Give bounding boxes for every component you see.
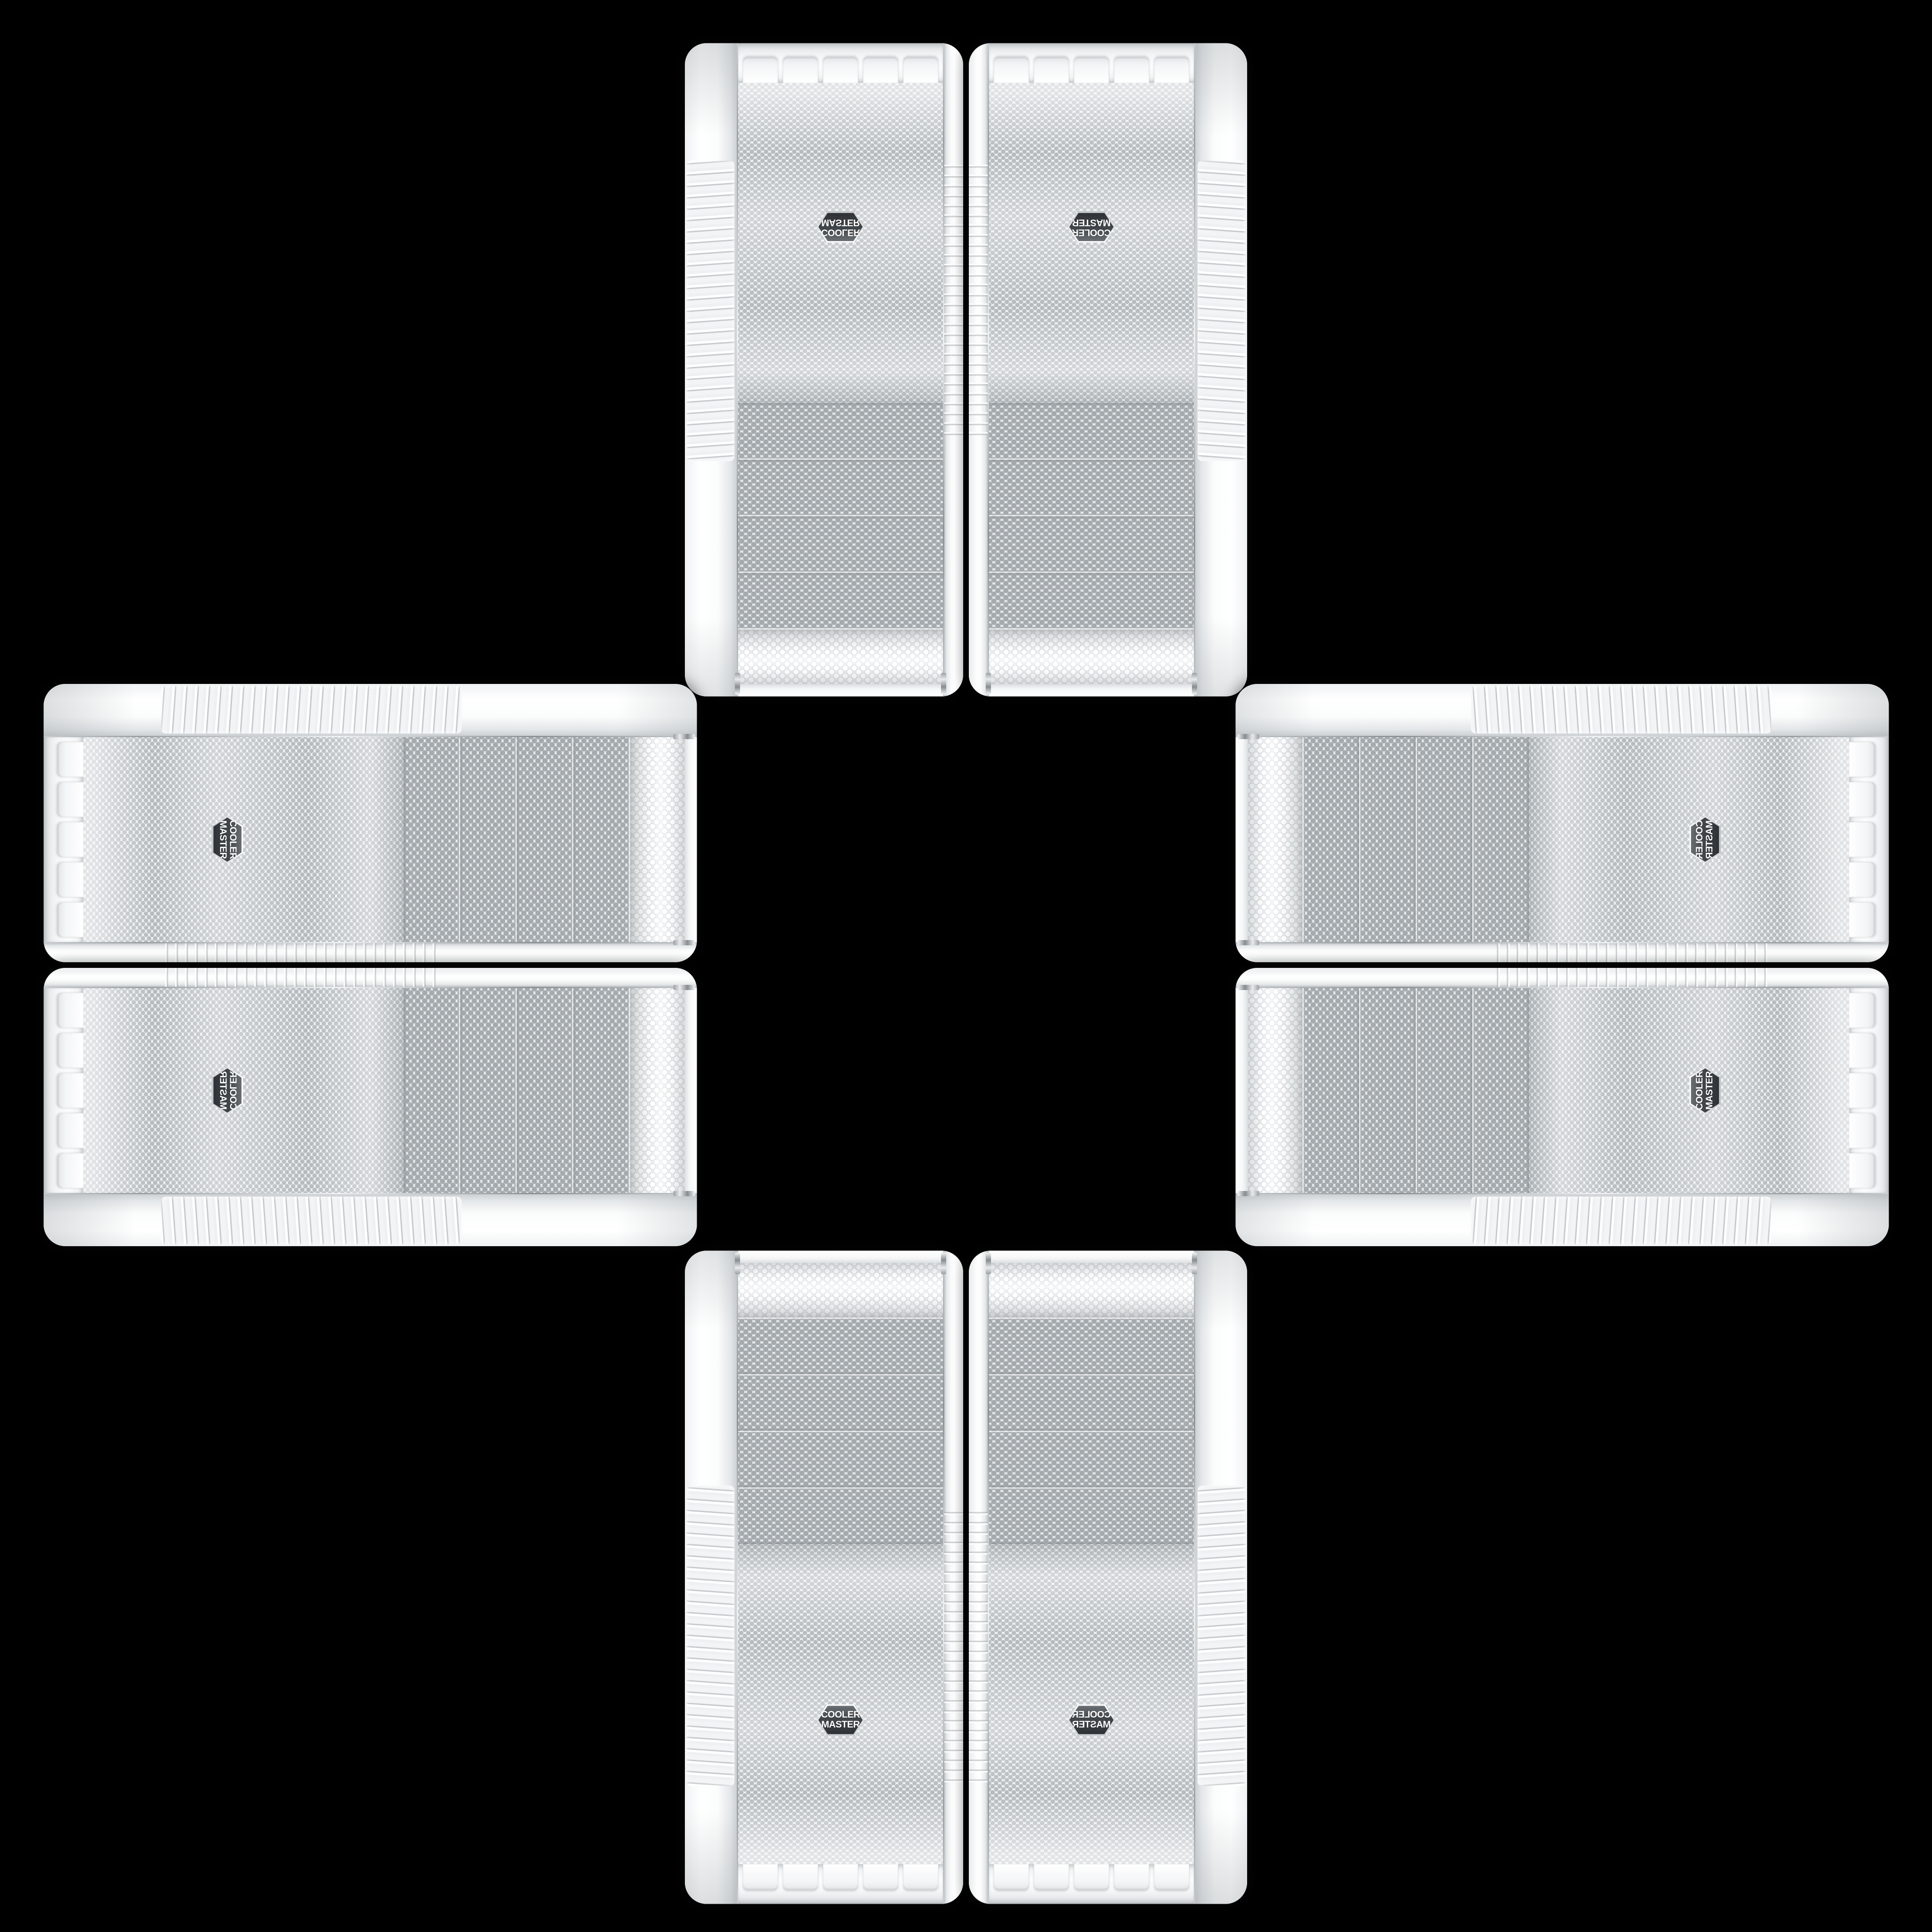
drive-bay-block — [738, 403, 943, 629]
outer-cap-tab-4 — [863, 57, 898, 83]
drive-bay-cover-4 — [989, 1487, 1194, 1544]
outer-end-cap — [738, 1864, 943, 1904]
outer-cap-tab-5 — [1849, 902, 1874, 937]
chrome-corner-tab-right — [986, 673, 991, 694]
badge-plate: COOLER MASTER — [1690, 817, 1719, 862]
badge-plate: COOLER MASTER — [1069, 1706, 1114, 1734]
outer-end-cap — [989, 43, 1194, 83]
inner-cap-shading — [1248, 988, 1302, 1193]
outer-cap-tab-1 — [1154, 1864, 1189, 1890]
cooler-master-badge: COOLER MASTER — [817, 1704, 864, 1735]
outer-cap-tab-2 — [1849, 782, 1874, 817]
mesh-sheen — [989, 83, 1194, 403]
outer-cap-tab-5 — [903, 57, 938, 83]
inner-cap-mesh — [630, 737, 684, 942]
drive-bay-block — [403, 737, 630, 942]
front-mesh: COOLER MASTER — [738, 83, 943, 403]
drive-bay-block — [1302, 737, 1529, 942]
rail-grip-fins — [1497, 968, 1771, 988]
side-rail — [43, 942, 697, 962]
inner-cap-mesh — [1248, 737, 1302, 942]
side-flank-panel — [43, 684, 697, 737]
chrome-trim-right — [988, 43, 989, 696]
chrome-corner-tab-left — [1237, 734, 1259, 739]
badge-text-line2: MASTER — [217, 1071, 227, 1109]
drive-bay-cover-3 — [989, 459, 1194, 516]
chrome-corner-tab-right — [1237, 940, 1259, 945]
drive-bay-cover-3 — [460, 737, 516, 942]
mesh-sheen — [989, 1544, 1194, 1864]
outer-cap-tab-5 — [58, 993, 83, 1028]
drive-bay-cover-4 — [403, 737, 460, 942]
rail-grip-fins — [1497, 942, 1771, 962]
outer-cap-tab-3 — [1074, 1864, 1109, 1890]
chrome-corner-tab-left — [673, 734, 695, 739]
outer-end-cap — [1849, 988, 1889, 1193]
outer-cap-tab-1 — [58, 742, 83, 777]
inner-cap-mesh — [989, 629, 1194, 684]
side-rail — [969, 43, 989, 696]
outer-cap-tab-2 — [1849, 1113, 1874, 1148]
chrome-corner-tab-left — [1237, 1191, 1259, 1196]
front-mesh: COOLER MASTER — [83, 737, 403, 942]
chrome-trim-right — [43, 987, 697, 988]
outer-cap-tab-2 — [783, 57, 818, 83]
outer-cap-tab-1 — [743, 1864, 778, 1890]
chrome-trim-left — [737, 43, 738, 696]
pc-case-right-bottom: COOLER MASTER — [1235, 968, 1889, 1246]
rail-grip-fins — [161, 968, 435, 988]
outer-cap-tab-1 — [1849, 1153, 1874, 1188]
chrome-trim-left — [1235, 1193, 1889, 1194]
chrome-corner-tab-left — [735, 1252, 740, 1274]
chrome-corner-tab-right — [941, 1252, 946, 1274]
front-mesh: COOLER MASTER — [1529, 988, 1849, 1193]
inner-cap-mesh — [1248, 988, 1302, 1193]
front-panel: COOLER MASTER — [43, 737, 697, 942]
badge-plate: COOLER MASTER — [818, 213, 863, 241]
front-panel: COOLER MASTER — [1235, 737, 1889, 942]
badge-plate: COOLER MASTER — [818, 1706, 863, 1734]
chrome-trim-right — [988, 1250, 989, 1904]
outer-end-cap — [43, 988, 83, 1193]
drive-bay-cover-4 — [403, 988, 460, 1193]
outer-end-cap — [43, 737, 83, 942]
chrome-trim-right — [943, 43, 944, 696]
inner-end-cap — [1235, 988, 1302, 1193]
badge-text-line1: COOLER — [227, 1071, 237, 1110]
outer-cap-tab-2 — [783, 1864, 818, 1890]
outer-cap-tab-1 — [58, 1153, 83, 1188]
chrome-trim-left — [43, 736, 697, 737]
outer-cap-tab-4 — [1849, 1033, 1874, 1068]
chrome-corner-tab-left — [1192, 1252, 1197, 1274]
drive-bay-block — [989, 1317, 1194, 1544]
drive-bay-cover-3 — [738, 459, 943, 516]
front-mesh: COOLER MASTER — [738, 1544, 943, 1864]
badge-plate: COOLER MASTER — [1069, 213, 1114, 241]
pc-case-wrapper-left-bottom: COOLER MASTER — [43, 968, 697, 1246]
pc-case-wrapper-right-bottom: COOLER MASTER — [1235, 968, 1889, 1246]
grip-fins — [1198, 160, 1245, 461]
grip-fins — [1471, 686, 1771, 733]
inner-cap-shading — [989, 1263, 1194, 1317]
mesh-sheen — [83, 988, 403, 1193]
mesh-sheen — [738, 1544, 943, 1864]
chrome-corner-tab-right — [673, 985, 695, 990]
rail-grip-fins — [943, 160, 963, 435]
drive-bay-cover-3 — [1416, 988, 1472, 1193]
drive-bay-cover-4 — [738, 1487, 943, 1544]
badge-text-line1: COOLER — [1695, 1071, 1705, 1110]
pc-case-left-bottom: COOLER MASTER — [43, 968, 697, 1246]
inner-cap-mesh — [738, 1263, 943, 1317]
front-panel: COOLER MASTER — [43, 988, 697, 1193]
drive-bay-cover-2 — [738, 1374, 943, 1431]
side-rail — [969, 1250, 989, 1904]
side-rail — [1235, 942, 1889, 962]
pc-case-top-left: COOLER MASTER — [685, 43, 963, 696]
outer-cap-tab-2 — [1114, 57, 1149, 83]
inner-end-cap — [738, 629, 943, 696]
outer-end-cap — [1849, 737, 1889, 942]
inner-cap-frame — [738, 684, 943, 696]
side-flank-panel — [1235, 684, 1889, 737]
chrome-trim-left — [1194, 43, 1195, 696]
black-backdrop: COOLER MASTER — [0, 0, 1932, 1932]
mesh-sheen — [1529, 988, 1849, 1193]
side-flank-panel — [1194, 43, 1247, 696]
outer-cap-tab-4 — [58, 862, 83, 897]
badge-text-line1: COOLER — [1695, 820, 1705, 859]
rail-grip-fins — [943, 1512, 963, 1786]
front-panel: COOLER MASTER — [738, 1250, 943, 1904]
front-panel: COOLER MASTER — [989, 1250, 1194, 1904]
chrome-trim-right — [43, 942, 697, 943]
inner-end-cap — [989, 1250, 1194, 1317]
drive-bay-cover-4 — [1472, 988, 1529, 1193]
drive-bay-cover-3 — [1416, 737, 1472, 942]
mesh-sheen — [738, 83, 943, 403]
chrome-corner-tab-right — [986, 1252, 991, 1274]
drive-bay-cover-3 — [738, 1431, 943, 1487]
front-mesh: COOLER MASTER — [1529, 737, 1849, 942]
outer-cap-tab-1 — [743, 57, 778, 83]
badge-text-line2: MASTER — [821, 217, 859, 227]
badge-text-line1: COOLER — [821, 1710, 860, 1720]
rail-grip-fins — [969, 1512, 989, 1786]
front-panel: COOLER MASTER — [989, 43, 1194, 696]
badge-plate: COOLER MASTER — [213, 817, 241, 862]
outer-cap-tab-3 — [823, 1864, 858, 1890]
front-panel: COOLER MASTER — [738, 43, 943, 696]
inner-cap-shading — [738, 629, 943, 684]
side-rail — [943, 43, 963, 696]
inner-cap-frame — [684, 988, 697, 1193]
drive-bay-cover-1 — [738, 573, 943, 629]
side-flank-panel — [685, 43, 738, 696]
front-panel: COOLER MASTER — [1235, 988, 1889, 1193]
chrome-corner-tab-left — [673, 1191, 695, 1196]
outer-cap-tab-3 — [1849, 1073, 1874, 1108]
grip-fins — [1471, 1197, 1771, 1244]
front-mesh: COOLER MASTER — [989, 1544, 1194, 1864]
chrome-trim-left — [43, 1193, 697, 1194]
outer-cap-tab-3 — [823, 57, 858, 83]
side-rail — [43, 968, 697, 988]
pc-case-wrapper-top-left: COOLER MASTER — [685, 43, 963, 696]
inner-cap-frame — [1235, 988, 1248, 1193]
inner-end-cap — [738, 1250, 943, 1317]
inner-end-cap — [989, 629, 1194, 696]
pc-case-right-top: COOLER MASTER — [1235, 684, 1889, 962]
drive-bay-block — [403, 988, 630, 1193]
badge-text-line2: MASTER — [1072, 217, 1110, 227]
inner-cap-shading — [989, 629, 1194, 684]
chrome-corner-tab-right — [1237, 985, 1259, 990]
inner-end-cap — [1235, 737, 1302, 942]
pc-case-wrapper-top-right: COOLER MASTER — [969, 43, 1247, 696]
inner-cap-frame — [989, 1250, 1194, 1263]
front-mesh: COOLER MASTER — [989, 83, 1194, 403]
outer-cap-tab-3 — [1074, 57, 1109, 83]
mesh-sheen — [83, 737, 403, 942]
outer-cap-tab-4 — [58, 1033, 83, 1068]
drive-bay-cover-2 — [1359, 988, 1416, 1193]
inner-cap-frame — [684, 737, 697, 942]
badge-text-line2: MASTER — [1705, 820, 1715, 858]
drive-bay-cover-4 — [738, 403, 943, 459]
badge-text-line1: COOLER — [227, 820, 237, 859]
front-mesh: COOLER MASTER — [83, 988, 403, 1193]
drive-bay-cover-1 — [989, 1317, 1194, 1374]
chrome-corner-tab-left — [735, 673, 740, 694]
drive-bay-cover-2 — [989, 516, 1194, 573]
chrome-trim-left — [1194, 1250, 1195, 1904]
outer-end-cap — [738, 43, 943, 83]
inner-cap-frame — [738, 1250, 943, 1263]
inner-cap-mesh — [989, 1263, 1194, 1317]
drive-bay-block — [1302, 988, 1529, 1193]
drive-bay-cover-2 — [1359, 737, 1416, 942]
outer-cap-tab-2 — [58, 1113, 83, 1148]
drive-bay-cover-1 — [573, 988, 630, 1193]
inner-cap-shading — [738, 1263, 943, 1317]
side-rail — [1235, 968, 1889, 988]
chrome-trim-right — [1235, 942, 1889, 943]
badge-text-line1: COOLER — [1072, 227, 1111, 237]
inner-end-cap — [630, 988, 697, 1193]
inner-cap-shading — [630, 988, 684, 1193]
badge-text-line2: MASTER — [217, 820, 227, 858]
outer-cap-tab-3 — [58, 822, 83, 857]
inner-cap-mesh — [630, 988, 684, 1193]
inner-cap-shading — [1248, 737, 1302, 942]
outer-cap-tab-5 — [903, 1864, 938, 1890]
badge-plate: COOLER MASTER — [213, 1068, 241, 1113]
pc-case-wrapper-bottom-left: COOLER MASTER — [685, 1250, 963, 1904]
chrome-corner-tab-left — [1192, 673, 1197, 694]
inner-cap-shading — [630, 737, 684, 942]
side-flank-panel — [43, 1193, 697, 1246]
badge-text-line2: MASTER — [1705, 1071, 1715, 1109]
drive-bay-cover-1 — [989, 573, 1194, 629]
pc-case-wrapper-right-top: COOLER MASTER — [1235, 684, 1889, 962]
cooler-master-badge: COOLER MASTER — [1068, 1704, 1115, 1735]
outer-cap-tab-2 — [1114, 1864, 1149, 1890]
drive-bay-cover-1 — [573, 737, 630, 942]
outer-cap-tab-5 — [1849, 993, 1874, 1028]
side-flank-panel — [1235, 1193, 1889, 1246]
drive-bay-cover-1 — [1302, 737, 1359, 942]
outer-cap-tab-2 — [58, 782, 83, 817]
pc-case-wrapper-left-top: COOLER MASTER — [43, 684, 697, 962]
outer-cap-tab-5 — [994, 1864, 1029, 1890]
pc-case-wrapper-bottom-right: COOLER MASTER — [969, 1250, 1247, 1904]
pc-case-bottom-right: COOLER MASTER — [969, 1250, 1247, 1904]
outer-cap-tab-4 — [863, 1864, 898, 1890]
badge-text-line2: MASTER — [821, 1720, 859, 1730]
drive-bay-cover-1 — [738, 1317, 943, 1374]
chrome-corner-tab-right — [941, 673, 946, 694]
grip-fins — [161, 1197, 461, 1244]
grip-fins — [687, 160, 734, 461]
outer-cap-tab-3 — [1849, 822, 1874, 857]
inner-end-cap — [630, 737, 697, 942]
drive-bay-cover-2 — [989, 1374, 1194, 1431]
inner-cap-frame — [1235, 737, 1248, 942]
grip-fins — [687, 1486, 734, 1786]
chrome-trim-right — [943, 1250, 944, 1904]
outer-cap-tab-4 — [1034, 57, 1069, 83]
outer-cap-tab-1 — [1849, 742, 1874, 777]
outer-cap-tab-5 — [58, 902, 83, 937]
outer-cap-tab-5 — [994, 57, 1029, 83]
inner-cap-frame — [989, 684, 1194, 696]
drive-bay-cover-2 — [516, 737, 573, 942]
outer-cap-tab-4 — [1849, 862, 1874, 897]
rail-grip-fins — [969, 160, 989, 435]
badge-text-line2: MASTER — [1072, 1720, 1110, 1730]
drive-bay-cover-1 — [1302, 988, 1359, 1193]
drive-bay-cover-3 — [460, 988, 516, 1193]
side-flank-panel — [685, 1250, 738, 1904]
drive-bay-block — [989, 403, 1194, 629]
outer-cap-tab-1 — [1154, 57, 1189, 83]
chrome-corner-tab-right — [673, 940, 695, 945]
chrome-trim-left — [737, 1250, 738, 1904]
rail-grip-fins — [161, 942, 435, 962]
grip-fins — [161, 686, 461, 733]
drive-bay-cover-4 — [989, 403, 1194, 459]
chrome-trim-left — [1235, 736, 1889, 737]
side-rail — [943, 1250, 963, 1904]
outer-end-cap — [989, 1864, 1194, 1904]
drive-bay-cover-3 — [989, 1431, 1194, 1487]
outer-cap-tab-3 — [58, 1073, 83, 1108]
badge-text-line1: COOLER — [821, 227, 860, 237]
side-flank-panel — [1194, 1250, 1247, 1904]
pc-case-bottom-left: COOLER MASTER — [685, 1250, 963, 1904]
inner-cap-mesh — [738, 629, 943, 684]
drive-bay-cover-2 — [516, 988, 573, 1193]
badge-plate: COOLER MASTER — [1690, 1068, 1719, 1113]
pc-case-left-top: COOLER MASTER — [43, 684, 697, 962]
drive-bay-cover-4 — [1472, 737, 1529, 942]
mesh-sheen — [1529, 737, 1849, 942]
chrome-trim-right — [1235, 987, 1889, 988]
drive-bay-cover-2 — [738, 516, 943, 573]
grip-fins — [1198, 1486, 1245, 1786]
pc-case-top-right: COOLER MASTER — [969, 43, 1247, 696]
badge-text-line1: COOLER — [1072, 1710, 1111, 1720]
drive-bay-block — [738, 1317, 943, 1544]
outer-cap-tab-4 — [1034, 1864, 1069, 1890]
